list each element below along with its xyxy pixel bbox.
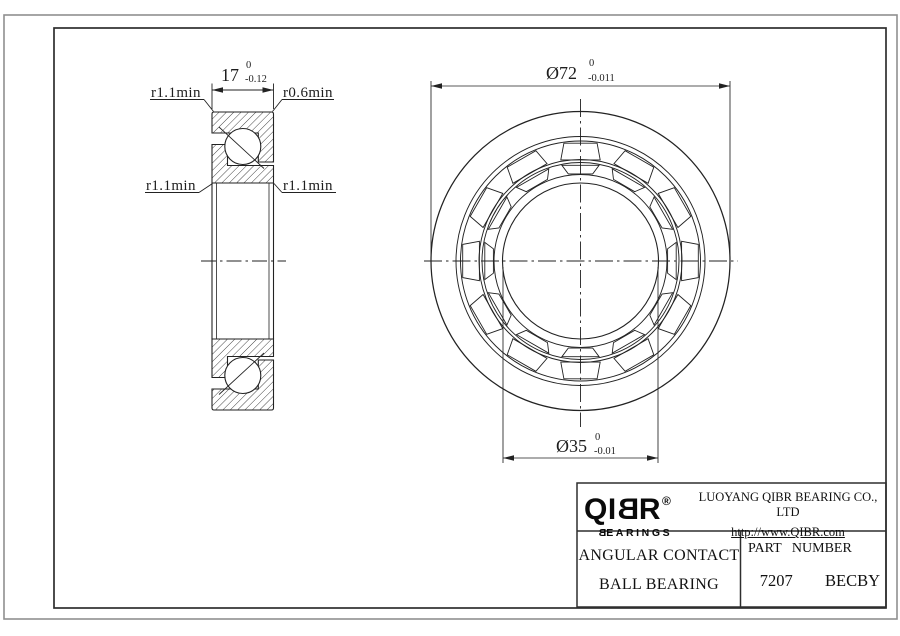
ball-bottom xyxy=(225,358,261,394)
radius-label-top-right: r0.6min xyxy=(283,85,333,101)
arrowhead-left xyxy=(503,455,514,460)
bore-dim-nominal: Ø35 xyxy=(556,436,587,456)
product-name-line1: ANGULAR CONTACT xyxy=(579,541,740,570)
ball-top xyxy=(225,129,261,165)
section-view xyxy=(201,112,286,410)
arrowhead-right xyxy=(263,87,274,92)
width-dim-nominal: 17 xyxy=(221,65,239,85)
bore-dim-tol-upper: 0 xyxy=(595,432,600,443)
part-number-label: PART NUMBER xyxy=(748,541,852,557)
radius-label-bottom-left: r1.1min xyxy=(146,178,196,194)
radius-label-bottom-right: r1.1min xyxy=(283,178,333,194)
registered-trademark-icon: ® xyxy=(662,494,671,508)
bore-dim-tol-lower: -0.01 xyxy=(594,446,616,457)
arrowhead-right xyxy=(719,83,730,88)
drawing-sheet: 17 0 -0.12 r1.1min r0.6min r1.1min r1.1m… xyxy=(0,0,900,636)
front-view xyxy=(424,99,738,427)
width-dimension xyxy=(212,84,274,110)
brand-wordmark: QIBR® xyxy=(584,486,672,525)
arrowhead-left xyxy=(212,87,223,92)
mirrored-letter: B xyxy=(617,495,639,525)
width-dim-tol-lower: -0.12 xyxy=(245,74,267,85)
od-dim-tol-lower: -0.011 xyxy=(588,73,615,84)
company-name: LUOYANG QIBR BEARING CO., LTD xyxy=(690,490,886,520)
radius-label-top-left: r1.1min xyxy=(151,85,201,101)
od-dim-tol-upper: 0 xyxy=(589,58,594,69)
product-name-cell: ANGULAR CONTACT BALL BEARING xyxy=(577,531,741,608)
part-number-value: 7207 BECBY xyxy=(740,571,880,591)
arrowhead-left xyxy=(431,83,442,88)
od-dim-nominal: Ø72 xyxy=(546,63,577,83)
width-dim-tol-upper: 0 xyxy=(246,60,251,71)
product-name-line2: BALL BEARING xyxy=(599,570,719,599)
arrowhead-right xyxy=(647,455,658,460)
